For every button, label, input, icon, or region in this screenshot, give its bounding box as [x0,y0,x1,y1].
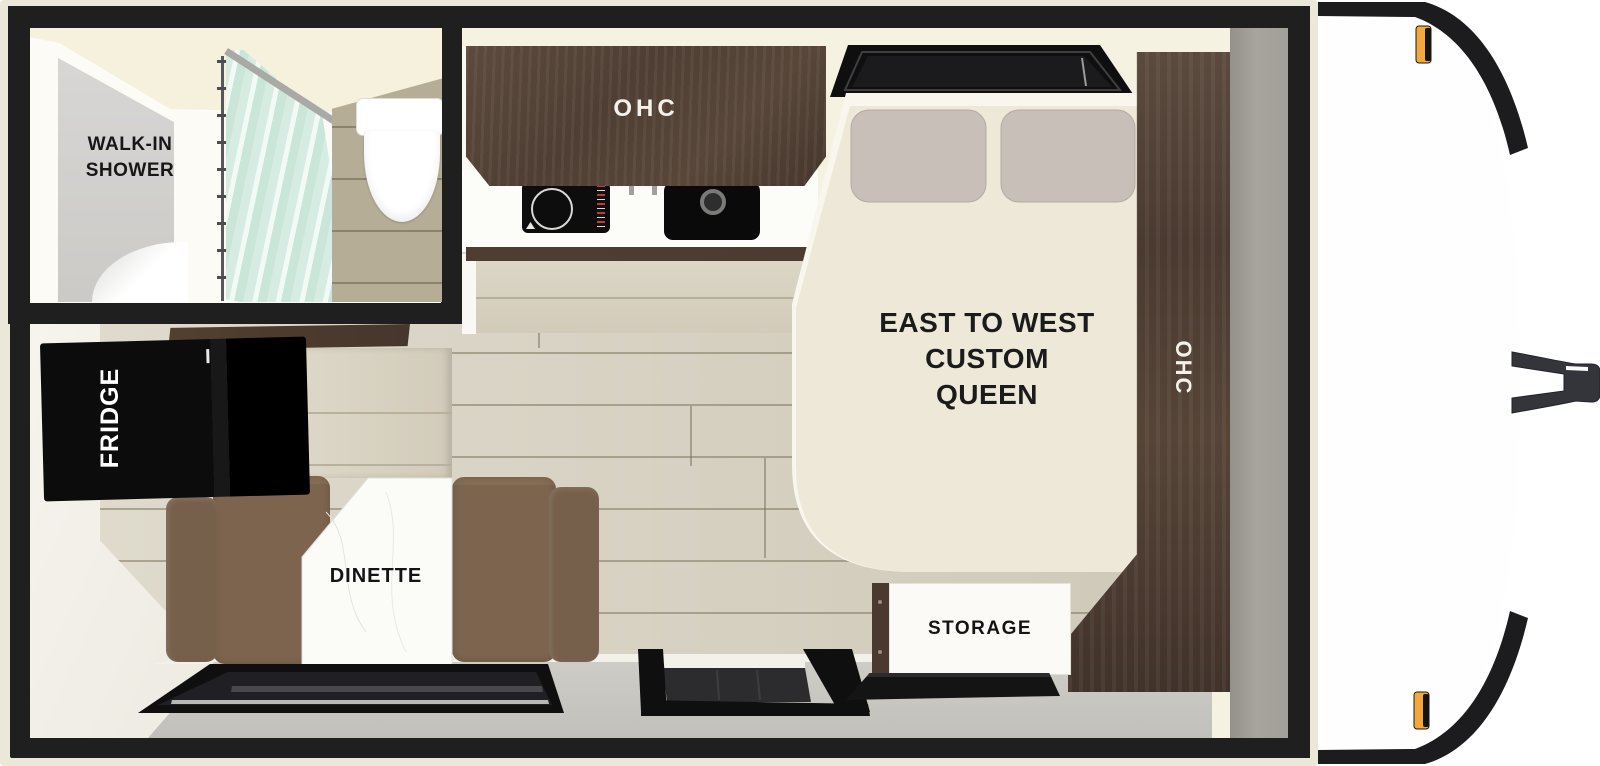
burner-icon [531,188,573,230]
pillow-right [1001,110,1135,202]
pillow-left [851,110,986,202]
dinette-bench-left-arm [166,497,218,662]
cooktop-controls [597,185,605,230]
walk-in-shower-label: WALK-IN SHOWER [60,132,200,184]
cooktop [522,182,610,233]
marker-light-bottom-shadow [1423,694,1429,727]
bedside-ohc-label: OHC [1153,338,1213,398]
front-cap-body [1318,8,1520,758]
shower-curtain-rings [217,60,227,300]
bed-label-line2: CUSTOM [864,341,1110,377]
hitch-tongue [1512,352,1600,413]
front-interior-wall [1230,28,1288,738]
dinette-window [132,658,572,718]
front-cap [1310,0,1600,766]
marker-light-top-shadow [1425,28,1431,61]
screw-icon [878,600,882,604]
storage-cabinet-side [872,583,889,673]
dinette-bench-right-arm [549,487,599,662]
counter-edge [466,247,818,261]
entry-step-well [625,640,875,720]
bathroom-inset: WALK-IN SHOWER [8,6,462,324]
floor-seam [764,458,766,558]
kitchen-sink [664,182,760,240]
storage-cabinet: STORAGE [889,583,1071,675]
bed-label-line3: QUEEN [864,377,1110,413]
kitchen-overhead-cabinet: OHC [466,46,826,186]
side-cabinet [306,348,452,478]
screw-icon [878,650,882,654]
fridge-label: FRIDGE [50,358,170,478]
bathroom-interior: WALK-IN SHOWER [30,28,442,302]
kitchen-base-cabinet [476,261,806,333]
drain-icon [700,189,726,215]
dinette-bench-right [452,477,556,662]
storage-mat [846,673,1060,700]
floor-seam [690,406,692,466]
flame-icon [526,222,535,229]
fridge-handle [206,349,209,363]
bed-label: EAST TO WEST CUSTOM QUEEN [864,305,1110,413]
wood-grain [466,46,826,186]
bed-label-line1: EAST TO WEST [864,305,1110,341]
floorplan-canvas: OHC EAST TO WEST CUSTOM QUEEN OHC FRIDGE [0,0,1600,766]
storage-label: STORAGE [928,618,1032,640]
dinette-label: DINETTE [308,565,444,588]
